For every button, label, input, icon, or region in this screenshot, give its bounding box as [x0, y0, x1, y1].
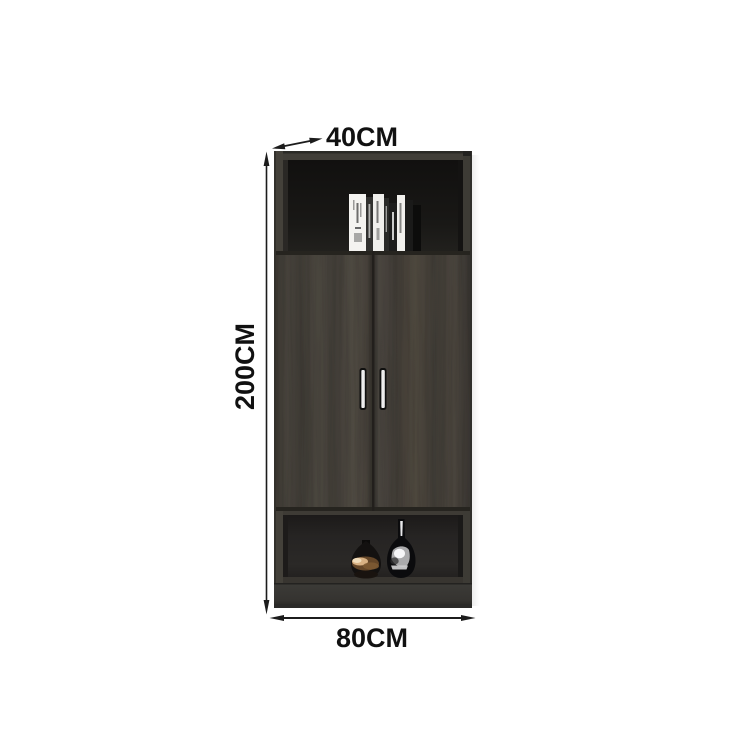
svg-text:200CM: 200CM — [230, 323, 260, 410]
svg-text:40CM: 40CM — [326, 122, 398, 152]
svg-text:80CM: 80CM — [336, 623, 408, 653]
